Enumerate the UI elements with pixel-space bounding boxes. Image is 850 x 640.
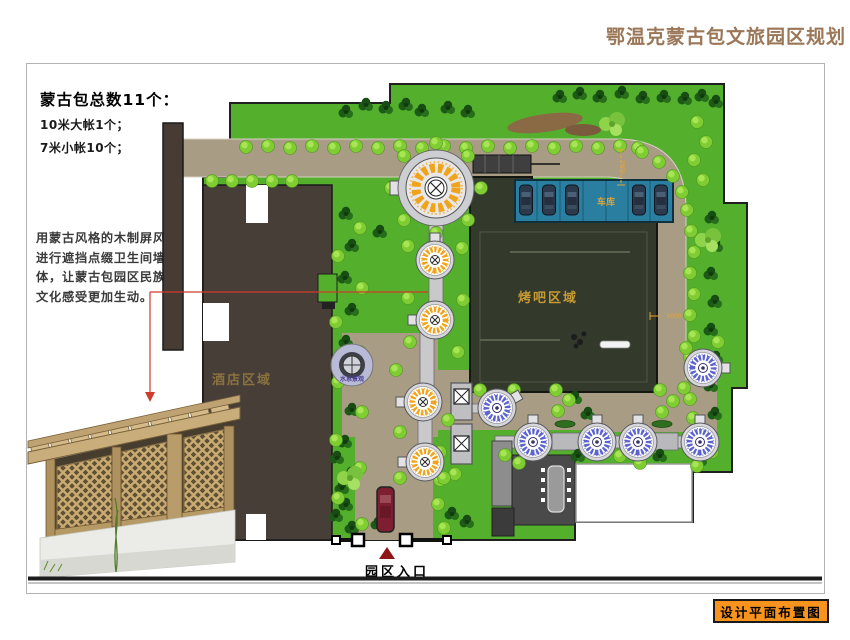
water-label: 水系景观 (340, 375, 364, 383)
toilet-blocks (451, 383, 472, 464)
bbq-label: 烤吧区域 (518, 290, 578, 306)
entrance-car (377, 487, 394, 532)
caption-badge: 设计平面布置图 (713, 599, 829, 623)
pergola-photo (28, 393, 240, 578)
plan-slide: 鄂温克蒙古包文旅园区规划 蒙古包总数11个： 10米大帐1个； 7米小帐10个；… (0, 0, 850, 640)
dim-vertical: 7800 (619, 160, 625, 174)
entrance-arrow-icon (379, 547, 395, 559)
garage-building: 车库 (515, 180, 673, 222)
ground-line (28, 577, 822, 584)
garage-label: 车库 (597, 196, 615, 208)
white-court (576, 464, 692, 522)
west-wing-building (163, 123, 183, 350)
dim-horizontal: 5000 (666, 313, 681, 320)
hotel-label: 酒店区域 (212, 372, 272, 388)
site-plan-drawing: 酒店区域 烤吧区域 车库 (0, 0, 850, 640)
water-feature: 水系景观 (331, 344, 373, 386)
